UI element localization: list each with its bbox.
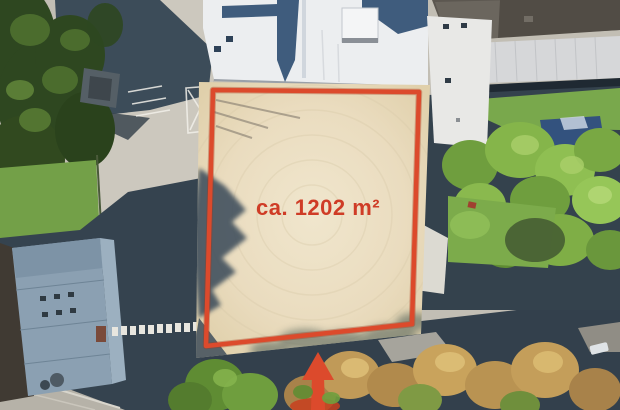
aerial-photo: ca. 1202 m² [0, 0, 620, 410]
annex-white-roof [427, 16, 492, 148]
aerial-photo-canvas: ca. 1202 m² [0, 0, 620, 410]
building-bottom-left [0, 238, 126, 402]
building-top-center [203, 0, 428, 88]
shelter [80, 68, 120, 108]
sand-plot [182, 82, 442, 362]
area-label: ca. 1202 m² [256, 195, 380, 220]
skylight-box [342, 8, 378, 42]
